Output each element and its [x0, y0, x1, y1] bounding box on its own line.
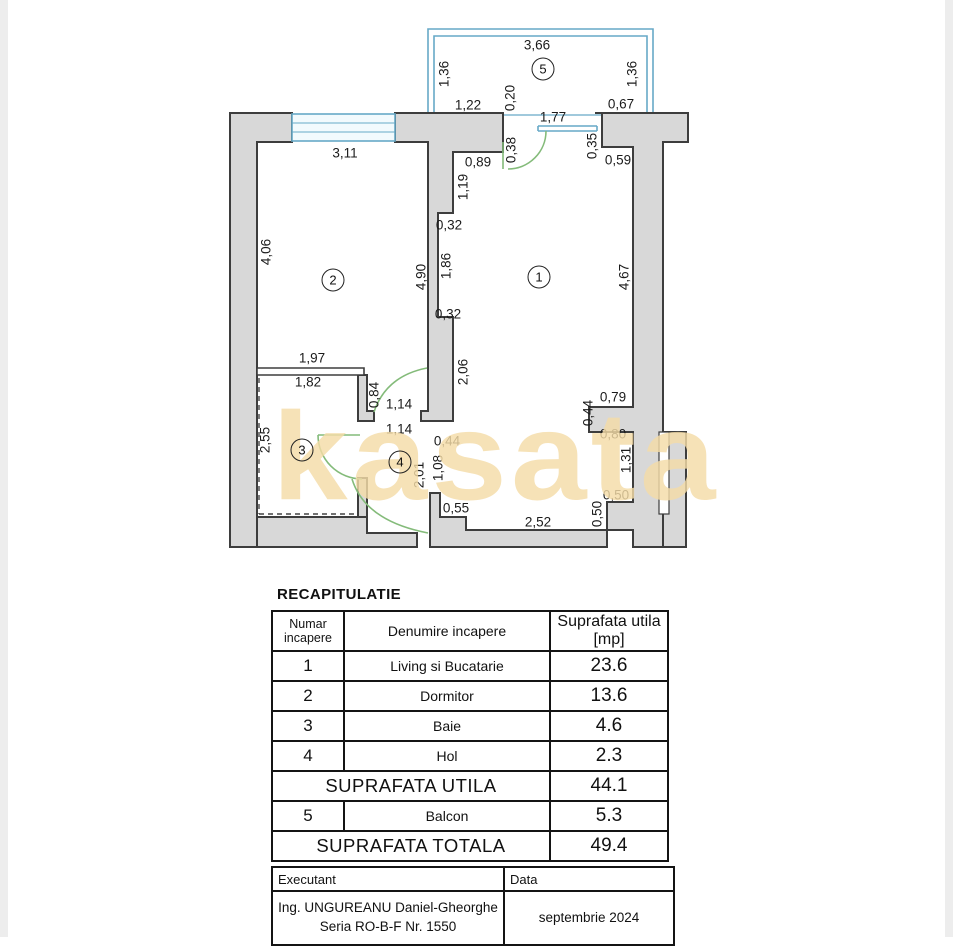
header-denumire-incapere: Denumire incapere	[344, 611, 550, 651]
room-number: 3	[272, 711, 344, 741]
room-area: 13.6	[550, 681, 668, 711]
table-row-balcon: 5 Balcon 5.3	[272, 801, 668, 831]
suprafata-totala-label: SUPRAFATA TOTALA	[272, 831, 550, 861]
room-area: 2.3	[550, 741, 668, 771]
room-number: 2	[272, 681, 344, 711]
room-number-badge: 4	[389, 451, 412, 474]
room-area: 23.6	[550, 651, 668, 681]
data-label: Data	[504, 867, 674, 891]
suprafata-utila-row: SUPRAFATA UTILA 44.1	[272, 771, 668, 801]
header-suprafata-utila: Suprafata utila [mp]	[550, 611, 668, 651]
plan-room-layer: 52134	[0, 0, 953, 575]
room-number-badge: 3	[291, 439, 314, 462]
recap-section: RECAPITULATIE Numar incapere Denumire in…	[271, 586, 669, 946]
signature-block: Executant Data Ing. UNGUREANU Daniel-Ghe…	[271, 866, 675, 946]
recap-table: Numar incapere Denumire incapere Suprafa…	[271, 610, 669, 862]
room-area: 5.3	[550, 801, 668, 831]
room-name: Baie	[344, 711, 550, 741]
room-name: Dormitor	[344, 681, 550, 711]
suprafata-utila-label: SUPRAFATA UTILA	[272, 771, 550, 801]
table-row: 4 Hol 2.3	[272, 741, 668, 771]
executant-name: Ing. UNGUREANU Daniel-Gheorghe	[273, 899, 503, 918]
room-number: 5	[272, 801, 344, 831]
room-number: 4	[272, 741, 344, 771]
header-numar-incapere: Numar incapere	[272, 611, 344, 651]
room-number-badge: 2	[322, 269, 345, 292]
executant-seria: Seria RO-B-F Nr. 1550	[273, 918, 503, 937]
recap-header-row: Numar incapere Denumire incapere Suprafa…	[272, 611, 668, 651]
room-number-badge: 1	[528, 266, 551, 289]
room-name: Living si Bucatarie	[344, 651, 550, 681]
table-row: 2 Dormitor 13.6	[272, 681, 668, 711]
room-name: Hol	[344, 741, 550, 771]
room-number-badge: 5	[532, 58, 555, 81]
suprafata-totala-value: 49.4	[550, 831, 668, 861]
page: { "colors": { "wall_fill": "#d8d8d8", "w…	[0, 0, 953, 937]
room-area: 4.6	[550, 711, 668, 741]
suprafata-totala-row: SUPRAFATA TOTALA 49.4	[272, 831, 668, 861]
signature-header-row: Executant Data	[272, 867, 674, 891]
recap-title: RECAPITULATIE	[277, 586, 669, 603]
executant-label: Executant	[272, 867, 504, 891]
room-name: Balcon	[344, 801, 550, 831]
table-row: 1 Living si Bucatarie 23.6	[272, 651, 668, 681]
room-number: 1	[272, 651, 344, 681]
floor-plan: 3,661,361,361,220,201,770,670,380,350,59…	[0, 0, 953, 575]
table-row: 3 Baie 4.6	[272, 711, 668, 741]
suprafata-utila-value: 44.1	[550, 771, 668, 801]
